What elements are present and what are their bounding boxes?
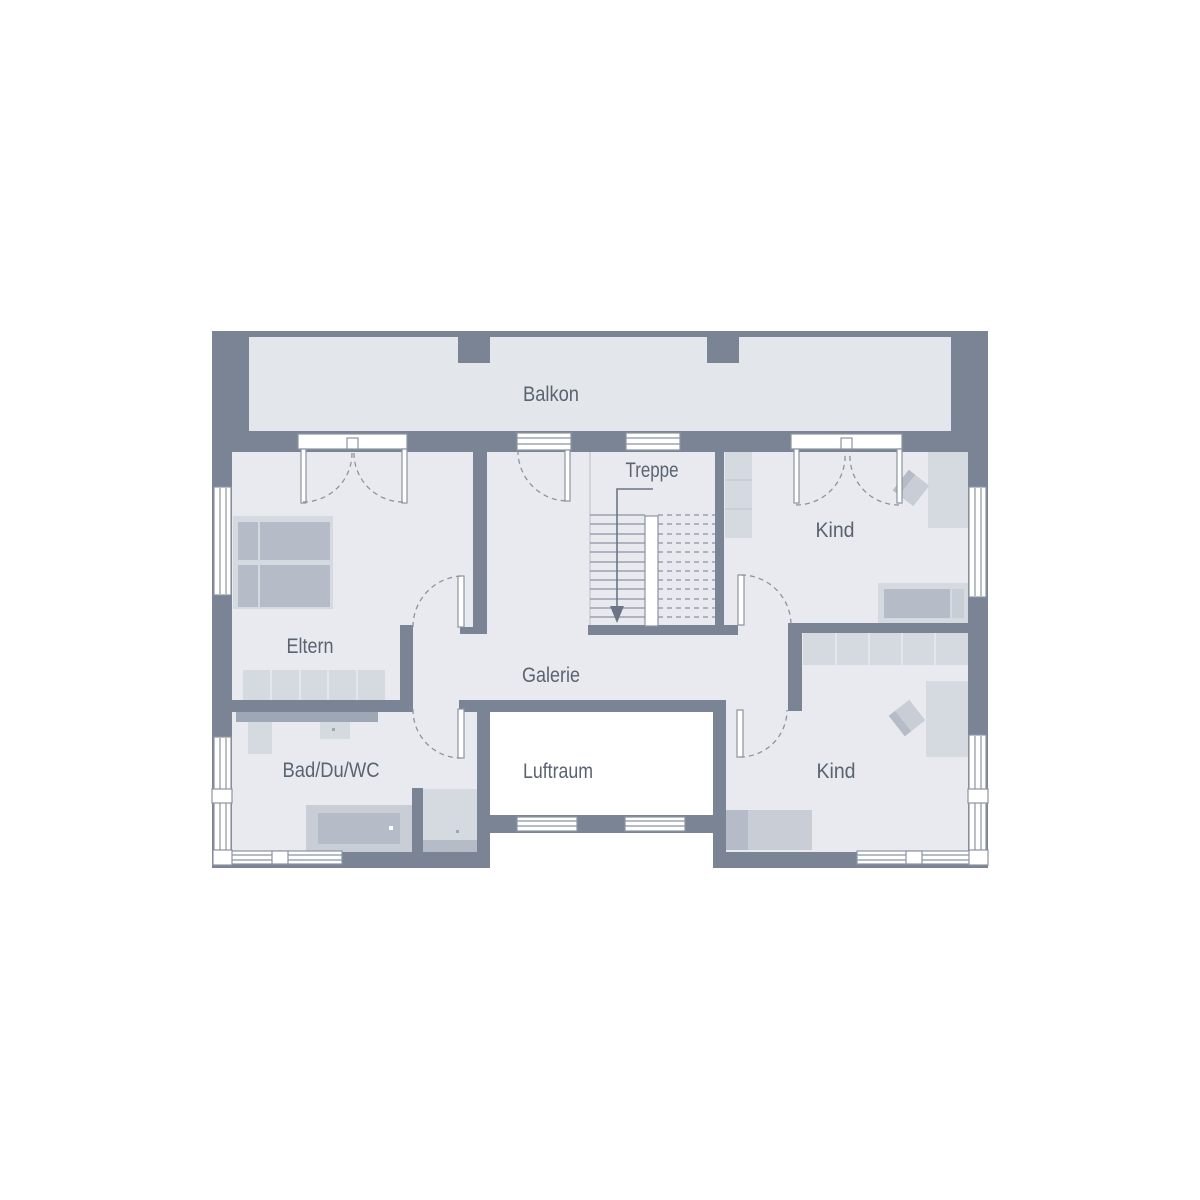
wall-luftraum-west <box>477 700 490 868</box>
wall-shower-stub <box>412 788 423 852</box>
window-bad-south <box>213 850 342 865</box>
wall-kind-doorpost <box>788 623 802 711</box>
vanity-counter-icon <box>236 712 378 722</box>
wall-balcony-right-pier <box>951 331 988 452</box>
window-kind-top-east <box>969 487 986 597</box>
balcony-pillar <box>458 337 490 363</box>
wardrobe-icon <box>725 452 752 538</box>
wardrobe-icon <box>803 633 968 665</box>
bed-icon <box>878 583 968 624</box>
wc-icon <box>248 722 272 754</box>
wall-luftraum-east <box>713 700 726 868</box>
room-label-galerie: Galerie <box>522 664 580 687</box>
wall-balcony-parapet <box>212 331 988 337</box>
wall-eltern-galerie-upper <box>473 452 487 627</box>
window-bad-west <box>212 737 232 852</box>
desk-icon <box>926 681 968 757</box>
floor-plan: Balkon Treppe Kind Eltern Galerie Bad/Du… <box>0 0 1200 1200</box>
washbasin-icon <box>320 722 350 739</box>
room-label-balkon: Balkon <box>523 383 579 406</box>
floor-plan-page: Balkon Treppe Kind Eltern Galerie Bad/Du… <box>0 0 1200 1200</box>
room-balkon-floor <box>249 337 951 435</box>
facade-recess <box>490 833 713 868</box>
balcony-pillar <box>707 337 739 363</box>
stair-handrail <box>645 516 658 626</box>
window-treppe <box>626 433 680 450</box>
window-kind-bottom-south <box>857 850 988 865</box>
room-label-kind-bottom: Kind <box>817 760 856 783</box>
wall-luftraum-north <box>459 700 726 712</box>
room-label-kind-top: Kind <box>816 519 855 542</box>
window-eltern-west <box>214 487 231 595</box>
wall-stair-east <box>715 452 724 625</box>
room-label-treppe: Treppe <box>626 459 679 482</box>
bathtub-icon <box>306 805 412 852</box>
window-luftraum-south-right <box>625 817 685 831</box>
room-label-luftraum: Luftraum <box>523 760 593 783</box>
bed-icon <box>722 810 812 850</box>
wall-eltern-bad <box>232 700 413 712</box>
shower-icon <box>423 789 477 852</box>
double-bed-icon <box>233 516 333 609</box>
room-label-bad: Bad/Du/WC <box>283 759 380 782</box>
wall-balcony-left-pier <box>212 331 249 452</box>
window-luftraum-south-left <box>517 817 577 831</box>
wall-kind-kind <box>802 623 968 633</box>
wall-stair-south <box>588 625 738 635</box>
window-kind-bottom-east <box>968 735 988 852</box>
room-label-eltern: Eltern <box>287 635 334 658</box>
wall-eltern-galerie-lower <box>400 625 413 712</box>
wall-eltern-galerie-foot <box>460 627 487 634</box>
desk-icon <box>928 452 968 528</box>
sideboard-icon <box>243 670 385 700</box>
wall-luftraum-south <box>477 815 726 833</box>
